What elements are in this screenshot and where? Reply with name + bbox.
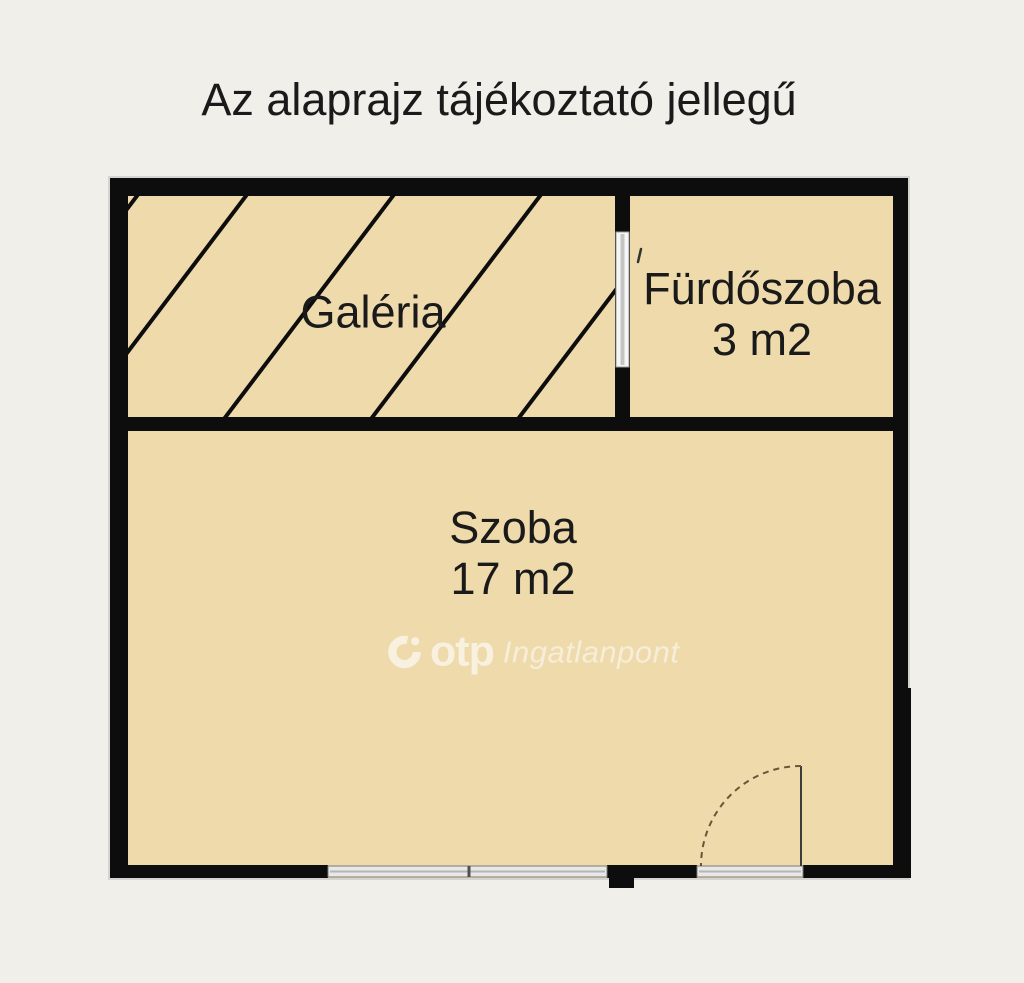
window: [328, 866, 607, 877]
furdoszoba-name: Fürdőszoba: [643, 263, 881, 314]
floor-plan-drawing: [0, 0, 1024, 983]
szoba-name: Szoba: [449, 502, 577, 553]
szoba-room-label: Szoba 17 m2: [449, 502, 577, 604]
furdoszoba-area-label: 3 m2: [643, 314, 881, 365]
floor-plan-page: Az alaprajz tájékoztató jellegű: [0, 0, 1024, 983]
wall-divider-horizontal: [110, 417, 908, 431]
wall-pier: [609, 868, 634, 888]
galeria-room-label: Galéria: [300, 287, 445, 338]
szoba-area-label: 17 m2: [449, 553, 577, 604]
wall-bottom-right: [803, 865, 908, 878]
entrance-threshold: [697, 866, 803, 877]
furdoszoba-room-label: Fürdőszoba 3 m2: [643, 263, 881, 365]
wall-right-step: [893, 688, 911, 878]
wall-left: [110, 178, 128, 878]
wall-top: [110, 178, 908, 196]
wall-bottom-left: [110, 865, 328, 878]
